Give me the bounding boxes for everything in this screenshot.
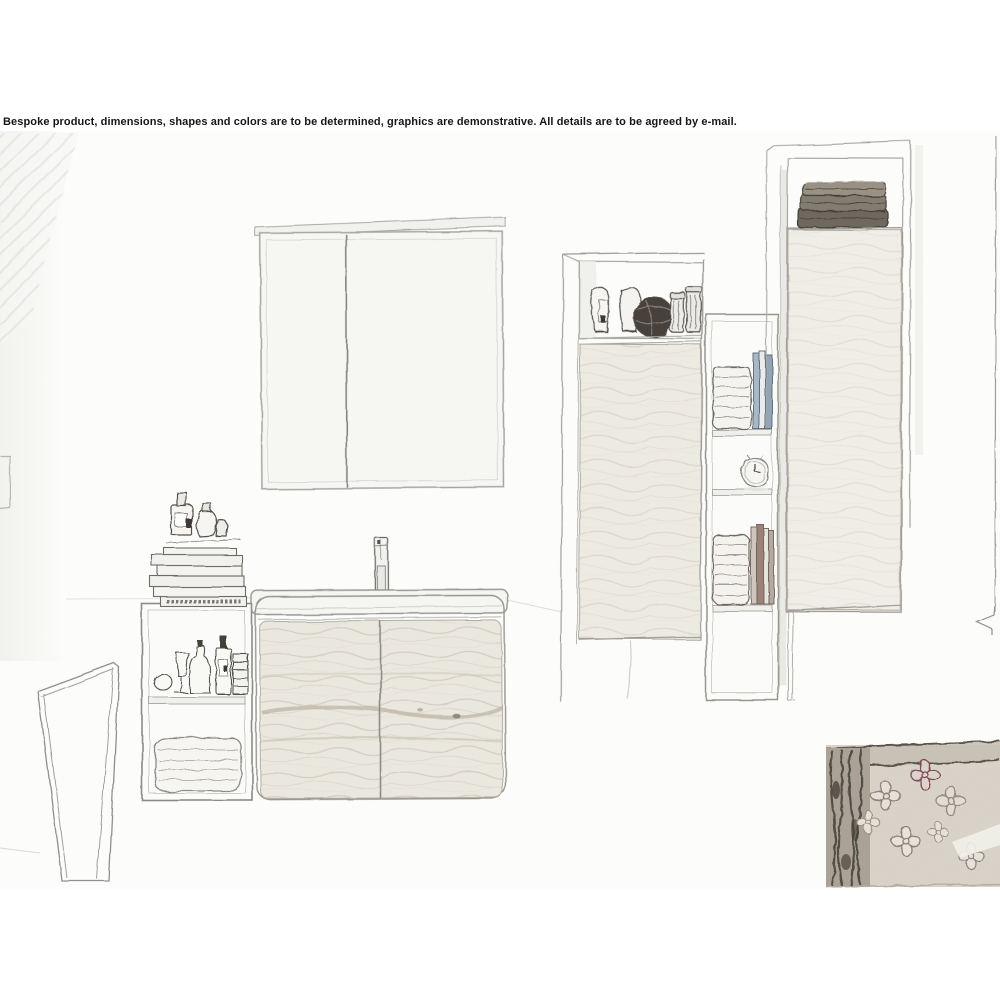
folded-towels-left [155,738,241,791]
faucet [375,538,388,595]
tall-cabinet-middle [561,252,704,703]
mirror-cabinet [255,217,507,489]
books-lower [751,525,774,604]
dark-towels-stack [798,182,888,228]
books-and-perfume [150,548,247,607]
towel-stack-upper [713,367,751,429]
rattan-ball [634,297,674,337]
carved-panel [826,741,1000,887]
books-upper [753,351,772,429]
product-image-canvas: Bespoke product, dimensions, shapes and … [0,0,1000,1000]
open-shelf-column [706,314,778,700]
vanity-door-divider [380,621,382,798]
basin-countertop [251,589,507,614]
bathroom-sketch [0,0,1000,1000]
towel-stack-lower [713,535,749,604]
